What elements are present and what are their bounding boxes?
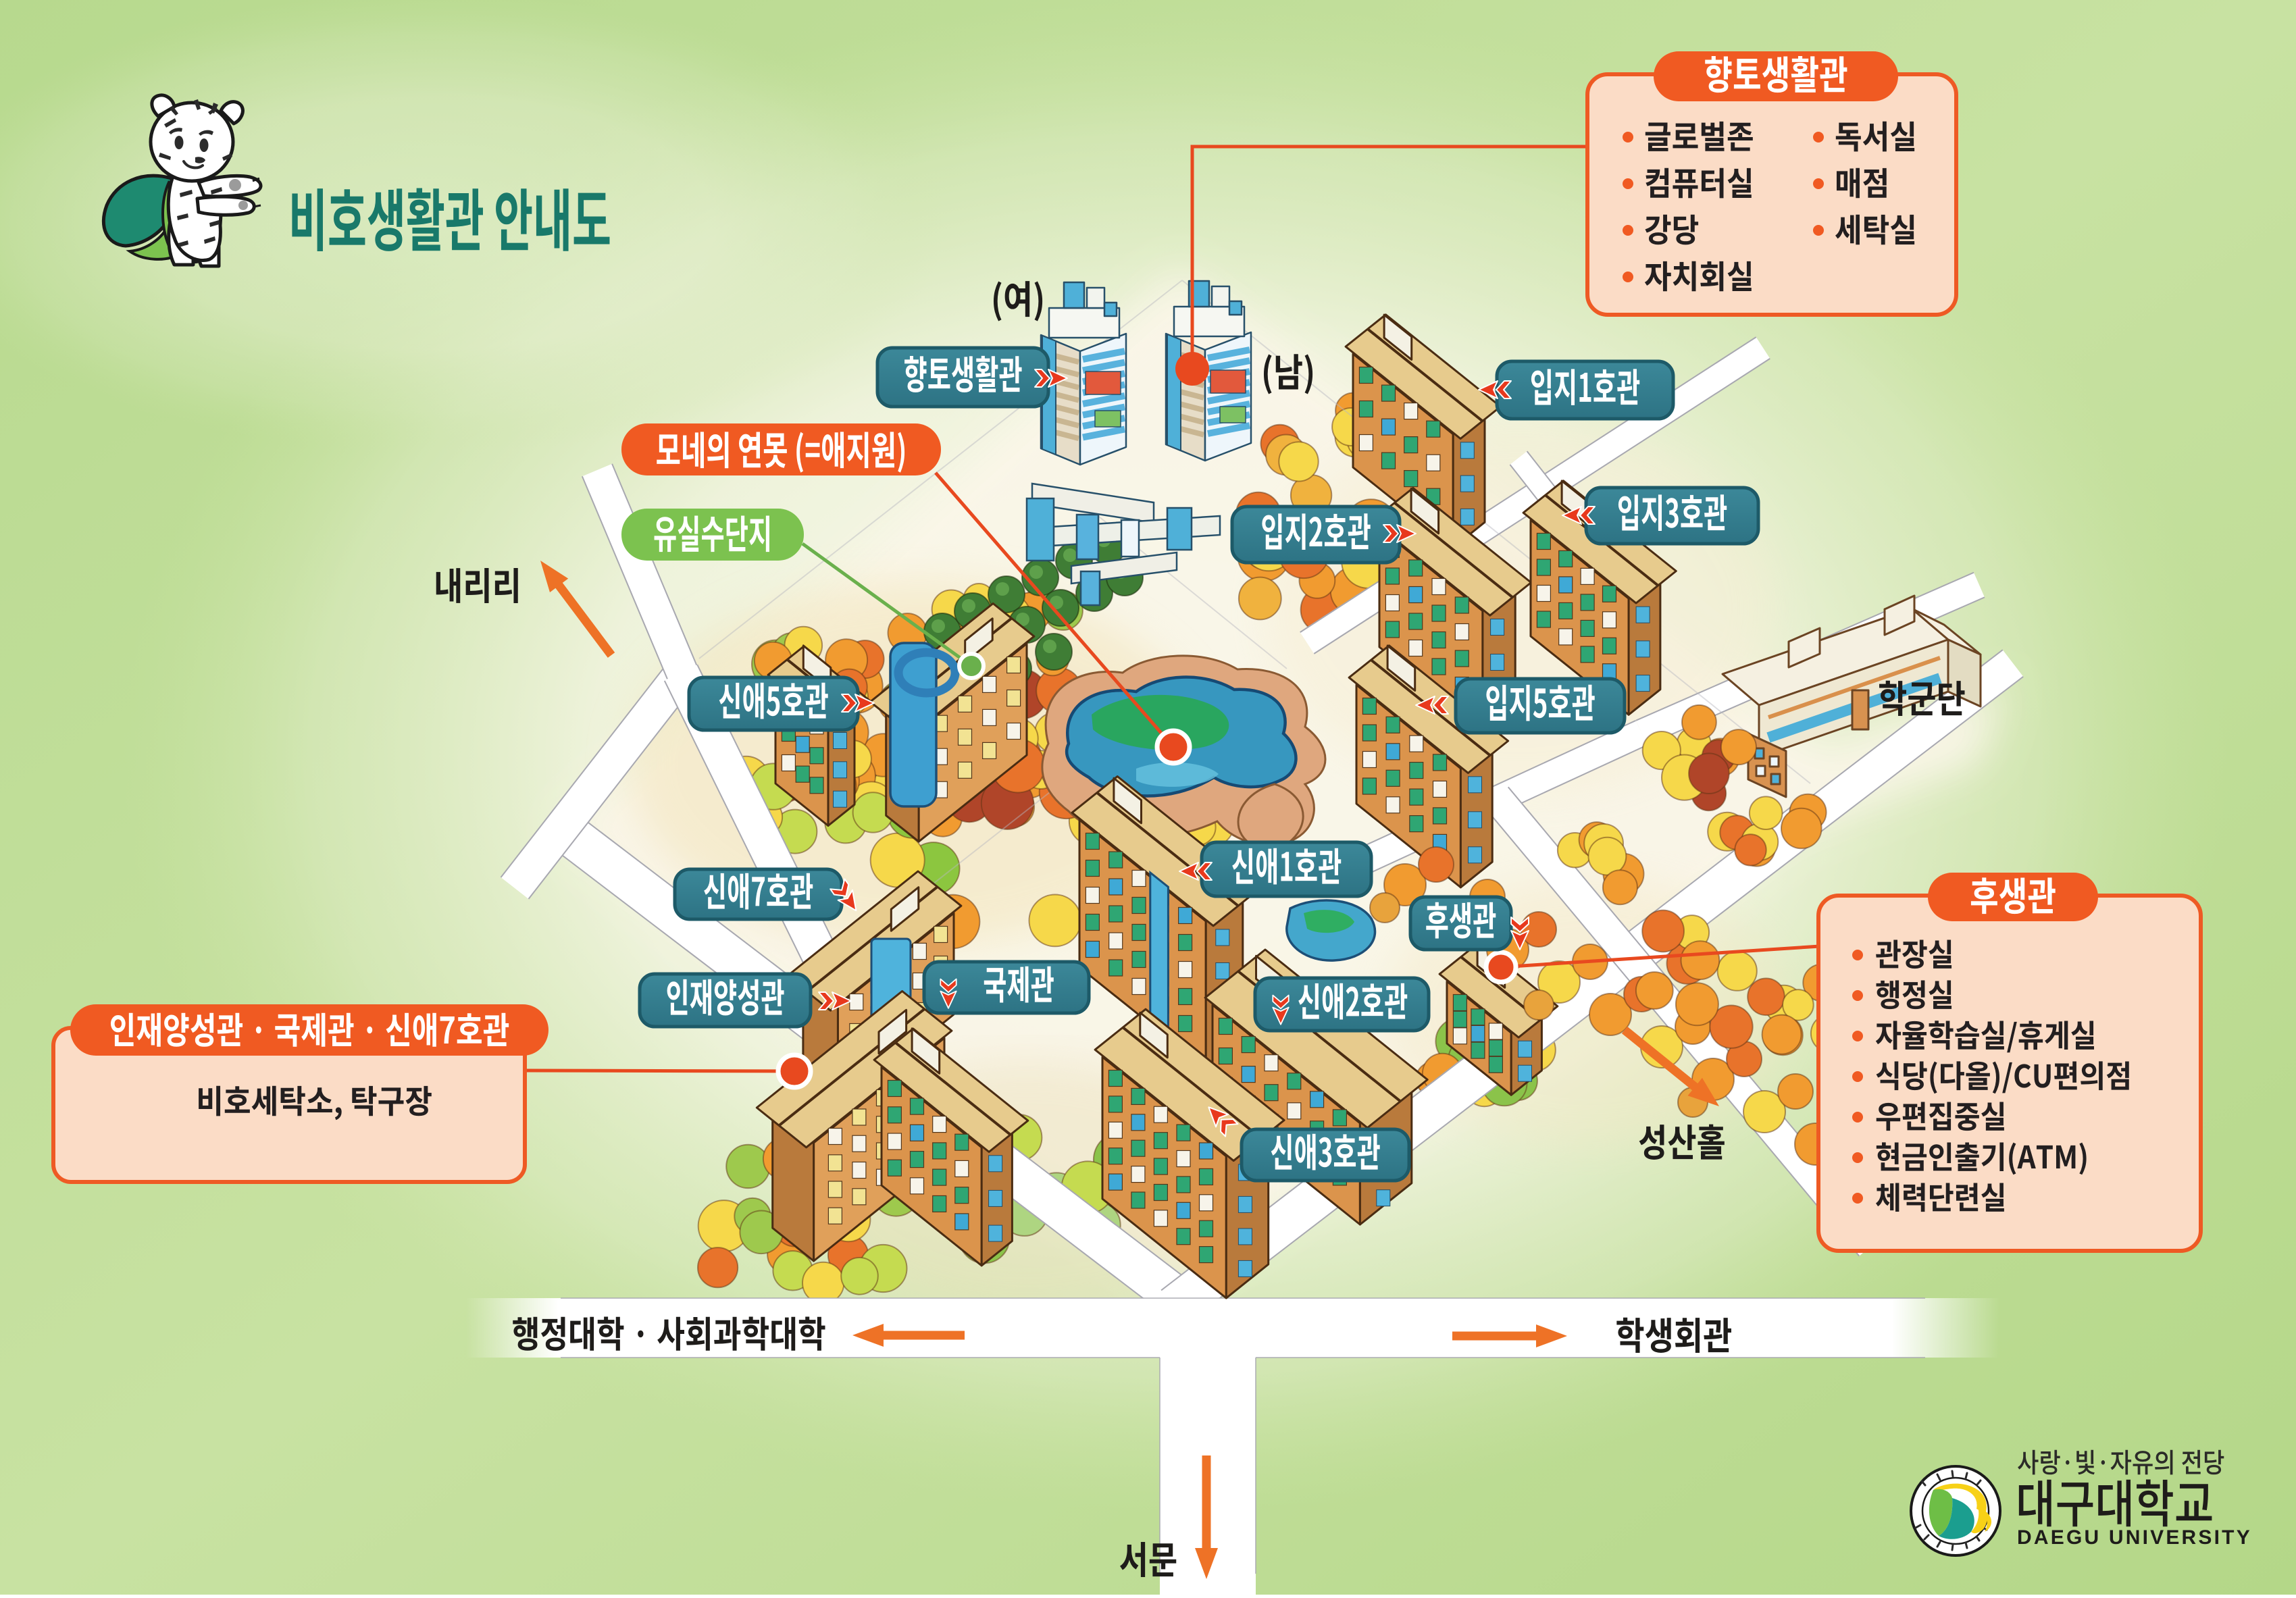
svg-text:DAEGU UNIVERSITY: DAEGU UNIVERSITY: [2017, 1526, 2252, 1549]
